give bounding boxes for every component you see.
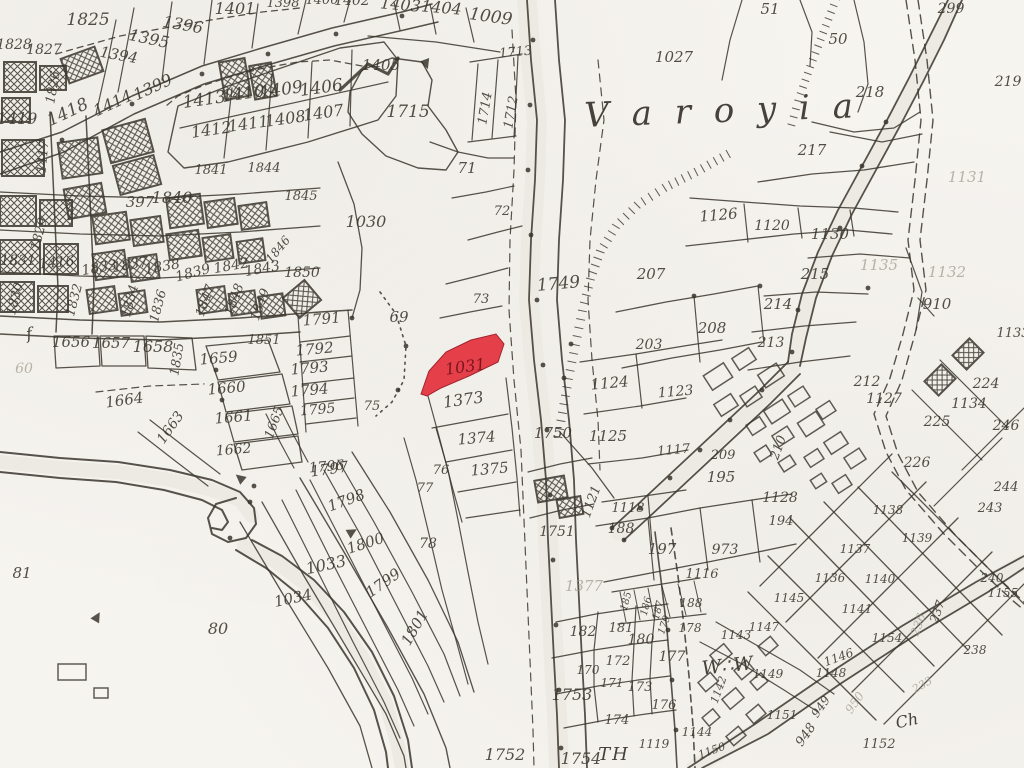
parcel-label: 1128	[762, 490, 798, 506]
scarp-hachure	[578, 310, 587, 312]
parcel-label: 77	[417, 481, 434, 496]
building-outline	[824, 432, 848, 455]
parcel-label: 1136	[815, 571, 846, 585]
survey-dot	[674, 728, 679, 733]
parcel-label: 171	[601, 676, 624, 690]
parcel-label: 1851	[247, 333, 280, 348]
scarp-hachure	[804, 72, 812, 75]
parcel-label: 1713	[499, 44, 533, 62]
hatched-block	[58, 137, 103, 178]
parcel-label: 75	[364, 399, 381, 414]
scarp-hachure	[612, 224, 620, 229]
parcel-label: 210	[767, 434, 790, 463]
building-outline	[702, 709, 720, 726]
parcel-label: 1116	[685, 567, 718, 582]
parcel-label: 1662	[215, 440, 252, 459]
boundary-line	[744, 204, 748, 242]
survey-dot	[531, 38, 536, 43]
parcel-label: 910	[923, 295, 952, 313]
parcel-label: 1793	[290, 357, 330, 378]
parcel-label: 214	[763, 295, 793, 313]
parcel-label: 1120	[754, 218, 790, 234]
parcel-label: 1375	[470, 458, 510, 479]
parcel-label: 174	[605, 713, 630, 728]
boundary-line	[348, 310, 358, 426]
parcel-label: 78	[419, 536, 437, 552]
scarp-hachure	[557, 420, 566, 422]
parcel-label: 1134	[951, 396, 987, 412]
boundary-line	[934, 438, 1002, 506]
parcel-label: 1148	[816, 666, 847, 680]
parcel-label: 1795	[299, 400, 336, 419]
boundary-line	[440, 306, 502, 318]
parcel-label: 177	[659, 649, 686, 665]
scarp-hachure	[694, 168, 698, 176]
parcel-label: 1143	[721, 628, 752, 642]
parcel-label: 76	[433, 463, 450, 478]
place-name: Ch	[894, 709, 920, 732]
parcel-label: 1656	[52, 333, 91, 351]
parcel-label: 188	[608, 521, 635, 537]
parcel-label: 1404	[420, 0, 462, 19]
parcel-label: 60	[15, 361, 33, 377]
survey-dot	[60, 138, 65, 143]
scarp-hachure	[675, 178, 679, 186]
parcel-label: 176	[652, 698, 677, 713]
scarp-hachure	[648, 193, 653, 201]
parcel-label: 1712	[501, 95, 522, 130]
parcel-label: 1408	[264, 106, 307, 130]
parcel-label: 72	[494, 204, 511, 219]
parcel-label: 1131	[948, 168, 986, 186]
survey-dot	[535, 298, 540, 303]
scarp-hachure	[814, 45, 821, 48]
hatched-block	[204, 198, 237, 228]
scarp-hachure	[822, 24, 829, 27]
parcel-label: 1664	[104, 388, 144, 411]
scarp-hachure	[589, 271, 597, 274]
parcel-label: 218	[855, 83, 885, 101]
parcel-label: 1373	[442, 387, 485, 411]
parcel-label: 1137	[840, 542, 871, 556]
parcel-label: 170	[577, 663, 600, 677]
parcel-label: 195	[707, 468, 736, 486]
parcel-label: 1401	[215, 0, 256, 18]
boundary-line	[636, 354, 642, 408]
place-name: V a r o y i a	[584, 86, 860, 136]
scarp-hachure	[604, 237, 612, 242]
scarp-hachure	[600, 244, 608, 249]
boundary-line	[616, 286, 758, 312]
parcel-label: 1792	[295, 338, 335, 359]
survey-dot	[220, 398, 225, 403]
scarp-hachure	[569, 353, 578, 355]
cadastral-map: 1031182518281827182613941395139614011398…	[0, 0, 1024, 768]
scarp-hachure	[558, 412, 567, 414]
parcel-label: 1827	[26, 42, 62, 58]
place-name: TH	[598, 744, 630, 765]
scarp-hachure	[629, 208, 635, 214]
scarp-hachure	[608, 231, 616, 236]
scarp-hachure	[827, 11, 834, 14]
parcel-label: 246	[992, 418, 1020, 434]
parcel-label: 1403	[379, 0, 421, 16]
survey-dot	[252, 484, 257, 489]
parcel-label: 1374	[457, 427, 497, 448]
parcel-label: 1799	[362, 564, 404, 601]
survey-dot	[569, 342, 574, 347]
parcel-label: 172	[606, 654, 631, 669]
boundary-line	[446, 268, 508, 284]
parcel-label: 197	[648, 540, 677, 558]
scarp-hachure	[594, 257, 602, 260]
scarp-hachure	[817, 38, 824, 41]
survey-dot	[551, 558, 556, 563]
parcel-label: 1416	[38, 253, 75, 272]
scarp-hachure	[596, 250, 604, 253]
survey-dot	[884, 120, 889, 125]
survey-dot	[796, 308, 801, 313]
building-outline	[703, 363, 732, 390]
hatched-block	[38, 286, 68, 312]
scarp-hachure	[662, 184, 667, 192]
parcel-label: 1840	[152, 188, 193, 207]
map-canvas: 1031182518281827182613941395139614011398…	[0, 0, 1024, 768]
parcel-label: 1139	[902, 531, 933, 545]
building-outline	[810, 473, 826, 488]
parcel-label: 1845	[284, 189, 317, 204]
parcel-label: 1140	[865, 572, 896, 586]
building-outline	[732, 348, 756, 371]
scarp-hachure	[655, 189, 660, 197]
parcel-label: 1009	[468, 4, 514, 30]
scarp-hachure	[830, 4, 837, 7]
parcel-label: 1661	[214, 406, 254, 427]
boundary-line	[722, 0, 742, 80]
survey-dot	[529, 233, 534, 238]
parcel-label: 1034	[272, 585, 313, 611]
boundary-line	[452, 186, 514, 198]
scarp-hachure	[576, 319, 585, 321]
survey-dot	[866, 286, 871, 291]
parcel-label: 1117	[657, 442, 692, 460]
hatched-block	[0, 196, 36, 226]
scarp-hachure	[688, 171, 692, 179]
parcel-label: 1151	[767, 708, 798, 722]
place-name: f	[23, 323, 36, 343]
parcel-label: 224	[972, 376, 1000, 392]
parcel-label: 243	[977, 501, 1003, 516]
parcel-label: 50	[828, 30, 848, 48]
hatched-block	[4, 62, 36, 92]
survey-dot	[698, 448, 703, 453]
survey-dot	[790, 350, 795, 355]
survey-dot	[670, 678, 675, 683]
boundary-line	[700, 508, 708, 570]
survey-dot	[728, 418, 733, 423]
parcel-label: 948	[793, 721, 820, 750]
survey-dot	[562, 376, 567, 381]
parcel-label: 1149	[753, 667, 784, 681]
parcel-label: 1750	[534, 424, 573, 442]
parcel-label: 1130	[811, 225, 850, 243]
scarp-hachure	[713, 157, 717, 165]
survey-dot	[760, 388, 765, 393]
parcel-label: 207	[636, 265, 666, 283]
parcel-label: 1147	[749, 620, 780, 634]
boundary-line	[338, 162, 362, 318]
scarp-hachure	[820, 31, 827, 34]
parcel-label: 1405	[362, 56, 400, 74]
survey-dot	[404, 344, 409, 349]
parcel-label: 182	[570, 624, 597, 640]
scarp-hachure	[825, 18, 832, 21]
parcel-label: 1142	[708, 674, 730, 705]
parcel-label: 180	[628, 632, 655, 648]
parcel-label: 1394	[99, 43, 140, 67]
parcel-label: 1124	[590, 372, 630, 393]
parcel-label: 1141	[842, 602, 873, 616]
map-viewport: 1031182518281827182613941395139614011398…	[0, 0, 1024, 768]
parcel-label: 217	[797, 141, 827, 159]
survey-dot	[860, 164, 865, 169]
boundary-line	[830, 132, 922, 142]
parcel-label: 1831	[0, 253, 36, 269]
parcel-label: 1791	[302, 308, 342, 329]
scarp-hachure	[575, 327, 584, 329]
parcel-label: 219	[994, 74, 1022, 90]
parcel-label: 973	[712, 542, 739, 558]
survey-dot	[541, 363, 546, 368]
parcel-label: 1754	[561, 749, 602, 768]
parcel-label: 1030	[346, 212, 387, 231]
survey-dot	[548, 493, 553, 498]
parcel-label: 1715	[386, 102, 429, 122]
parcel-label: 1407	[302, 100, 346, 125]
boundary-line	[458, 482, 516, 492]
boundary-line	[368, 36, 500, 52]
parcel-label: 1027	[655, 48, 694, 66]
survey-dot	[692, 294, 697, 299]
parcel-label: 73	[473, 292, 490, 307]
scarp-hachure	[681, 174, 685, 182]
parcel-label: 212	[853, 374, 881, 390]
parcel-label: 1417	[35, 139, 53, 174]
survey-dot	[350, 316, 355, 321]
parcel-label: 1841	[194, 163, 227, 178]
parcel-label: 1154	[872, 631, 903, 645]
hatched-block	[924, 364, 955, 395]
parcel-label: 1414	[90, 86, 135, 120]
parcel-label: 1126	[699, 204, 739, 225]
parcel-label: 1119	[639, 737, 670, 751]
parcel-label: 238	[963, 643, 987, 657]
survey-dot	[396, 388, 401, 393]
building-outline	[844, 448, 866, 469]
scarp-hachure	[586, 278, 595, 280]
survey-dot	[554, 623, 559, 628]
building-outline	[722, 688, 744, 710]
parcel-label: 1133	[996, 326, 1024, 341]
boundary-line	[506, 378, 520, 516]
boundary-line	[468, 226, 522, 240]
hatched-block	[61, 47, 104, 84]
parcel-label: 194	[769, 514, 794, 529]
parcel-label: 1138	[873, 503, 904, 517]
parcel-label: 209	[710, 448, 736, 463]
parcel-label: 1132	[928, 263, 966, 281]
parcel-label: 1398	[266, 0, 299, 11]
boundary-line	[204, 0, 212, 64]
parcel-label: 71	[457, 159, 476, 177]
parcel-label: 1660	[207, 377, 247, 398]
hatched-block	[92, 212, 130, 244]
scarp-hachure	[668, 181, 672, 189]
parcel-label: 244	[993, 480, 1019, 495]
scarp-hachure	[623, 213, 629, 219]
parcel-label: 1144	[682, 725, 713, 739]
scarp-hachure	[580, 302, 589, 304]
road-arrow-icon	[90, 610, 104, 624]
parcel-label: 1123	[657, 382, 694, 401]
parcel-label: 1406	[298, 75, 344, 101]
hatched-block	[952, 338, 983, 369]
survey-dot	[214, 368, 219, 373]
parcel-label: 173	[628, 680, 653, 695]
scarp-hachure	[591, 264, 599, 267]
boundary-line	[306, 418, 356, 424]
parcel-label: 1801	[397, 606, 432, 648]
boundary-line	[430, 142, 514, 158]
building-outline	[758, 636, 778, 655]
boundary-line	[432, 414, 508, 428]
parcel-label: 1152	[862, 737, 895, 752]
scarp-hachure	[582, 294, 591, 296]
parcel-label: 178	[679, 621, 702, 635]
parcel-label: 1836	[147, 288, 170, 324]
survey-dot	[200, 72, 205, 77]
survey-dot	[334, 32, 339, 37]
parcel-label: 208	[697, 319, 727, 337]
scarp-hachure	[568, 361, 577, 363]
boundary-line	[466, 510, 520, 518]
parcel-label: 226	[903, 455, 931, 471]
parcel-label: 225	[923, 414, 951, 430]
scarp-hachure	[563, 387, 572, 389]
parcel-label: 1402	[334, 0, 370, 9]
parcel-label: 188	[680, 596, 703, 610]
parcel-label: 1749	[536, 272, 581, 296]
scarp-hachure	[802, 79, 810, 82]
scarp-hachure	[641, 198, 646, 206]
boundary-line	[428, 396, 462, 522]
parcel-label: 81	[12, 564, 31, 582]
scarp-hachure	[573, 336, 582, 338]
parcel-label: 80	[208, 619, 228, 638]
parcel-label: 1658	[133, 337, 174, 356]
parcel-label: 397	[126, 193, 155, 211]
scarp-hachure	[707, 161, 711, 169]
building-outline	[58, 664, 86, 680]
scarp-hachure	[726, 150, 730, 158]
parcel-label: 51	[760, 0, 779, 18]
scarp-hachure	[634, 202, 640, 208]
parcel-label: 1794	[290, 379, 330, 400]
survey-dot	[228, 536, 233, 541]
parcel-label: 1118	[611, 501, 644, 516]
hatched-block	[130, 216, 163, 246]
parcel-label: 1125	[589, 427, 627, 445]
road-arrow-icon	[233, 471, 247, 485]
parcel-label: 215	[800, 265, 830, 283]
survey-dot	[668, 476, 673, 481]
parcel-label: 240	[980, 571, 1004, 585]
parcel-label: 1121	[579, 484, 604, 520]
parcel-label: 1135	[860, 256, 898, 274]
parcel-label: 1127	[866, 391, 902, 407]
boundary-line	[758, 162, 914, 182]
parcel-label: 1377	[565, 577, 604, 595]
survey-dot	[248, 500, 253, 505]
parcel-label: 1753	[552, 685, 593, 704]
building-outline	[832, 475, 852, 494]
scarp-hachure	[618, 219, 624, 225]
boundary-line	[352, 452, 474, 692]
parcel-label: 1155	[988, 586, 1019, 600]
parcel-label: 213	[757, 335, 785, 351]
scarp-hachure	[720, 154, 724, 162]
boundary-line	[96, 384, 204, 392]
survey-dot	[526, 168, 531, 173]
parcel-label: 1751	[539, 524, 575, 540]
building-outline	[94, 688, 108, 698]
parcel-label: 1825	[66, 10, 109, 30]
building-outline	[804, 449, 824, 468]
scarp-hachure	[566, 370, 575, 372]
survey-dot	[528, 103, 533, 108]
parcel-label: 1145	[774, 591, 805, 605]
parcel-label: 1850	[284, 265, 320, 281]
parcel-label: 69	[389, 308, 409, 326]
parcel-label: 299	[937, 1, 965, 17]
scarp-hachure	[700, 164, 704, 172]
parcel-label: 1419	[0, 109, 37, 128]
boundary-line	[800, 0, 812, 66]
survey-dot	[266, 52, 271, 57]
hatched-block	[86, 286, 117, 314]
survey-dot	[622, 538, 627, 543]
scarp-hachure	[812, 52, 819, 55]
hatched-block	[166, 230, 201, 260]
hatched-block	[64, 183, 107, 219]
survey-dot	[758, 284, 763, 289]
parcel-label: 1033	[304, 551, 348, 578]
parcel-label: 1659	[199, 347, 239, 368]
building-outline	[788, 386, 810, 407]
boundary-line	[472, 64, 478, 140]
parcel-label: 1657	[92, 334, 131, 352]
parcel-label: 1752	[485, 745, 526, 764]
parcel-label: 1844	[247, 161, 280, 176]
parcel-label: 203	[635, 337, 663, 353]
parcel-label: 950	[842, 689, 867, 716]
hatched-block	[238, 202, 269, 230]
